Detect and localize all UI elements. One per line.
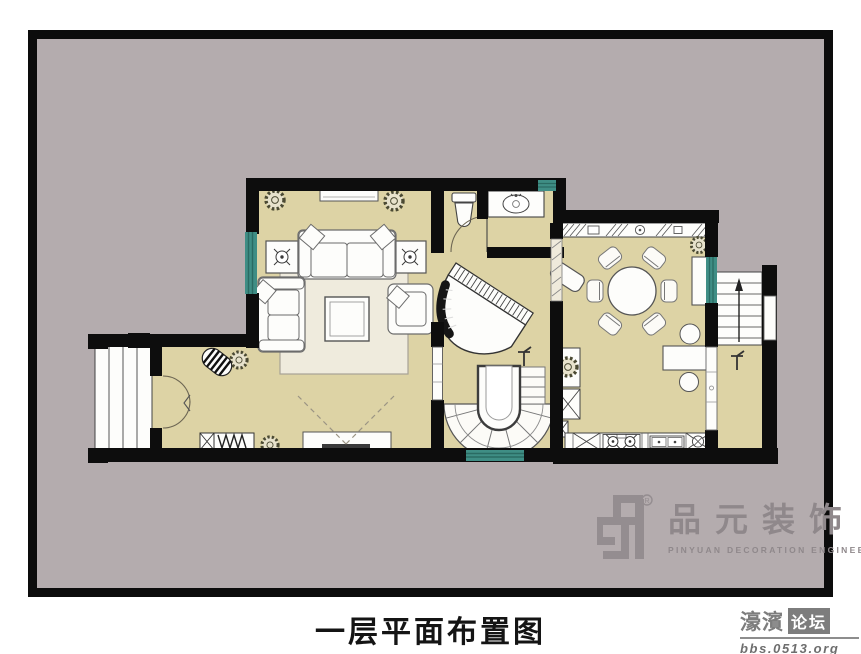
window-bottom — [466, 450, 524, 461]
coffee-table — [325, 297, 369, 341]
window-bathroom-top — [538, 180, 556, 191]
vanity-sink — [488, 191, 544, 217]
watermark-url: bbs.0513.org — [740, 641, 859, 654]
company-logo: R 品元装饰 PINYUAN DECORATION ENGINEERING — [597, 491, 861, 571]
kitchen-sink — [650, 436, 684, 448]
watermark-site-name: 濠濱 — [740, 606, 784, 636]
plan-caption: 一层平面布置图 — [0, 607, 861, 651]
sideboard-counter — [556, 223, 708, 237]
kitchen-counter — [565, 433, 710, 450]
watermark-forum-badge: 论坛 — [788, 608, 830, 634]
company-name-en: PINYUAN DECORATION ENGINEERING — [668, 545, 861, 555]
potted-plant — [691, 237, 706, 252]
potted-plant — [385, 192, 403, 210]
side-table-lamp-right — [394, 241, 426, 273]
potted-plant — [231, 352, 247, 368]
company-name-cn: 品元装饰 — [668, 499, 861, 540]
stove — [603, 435, 640, 449]
watermark: 濠濱 论坛 bbs.0513.org — [740, 606, 859, 654]
window-living-left — [245, 232, 257, 294]
side-table-lamp-left — [266, 241, 298, 273]
exterior-rear-stairs — [714, 272, 762, 345]
shoe-cabinet — [200, 433, 254, 450]
screenshot-canvas: R 品元装饰 PINYUAN DECORATION ENGINEERING 一层… — [0, 0, 861, 654]
registered-symbol: R — [644, 498, 649, 505]
logo-zp-mark-icon: R — [597, 491, 653, 571]
window-dining-right — [706, 257, 717, 303]
potted-plant — [266, 191, 284, 209]
exterior-entry-steps — [95, 344, 152, 454]
